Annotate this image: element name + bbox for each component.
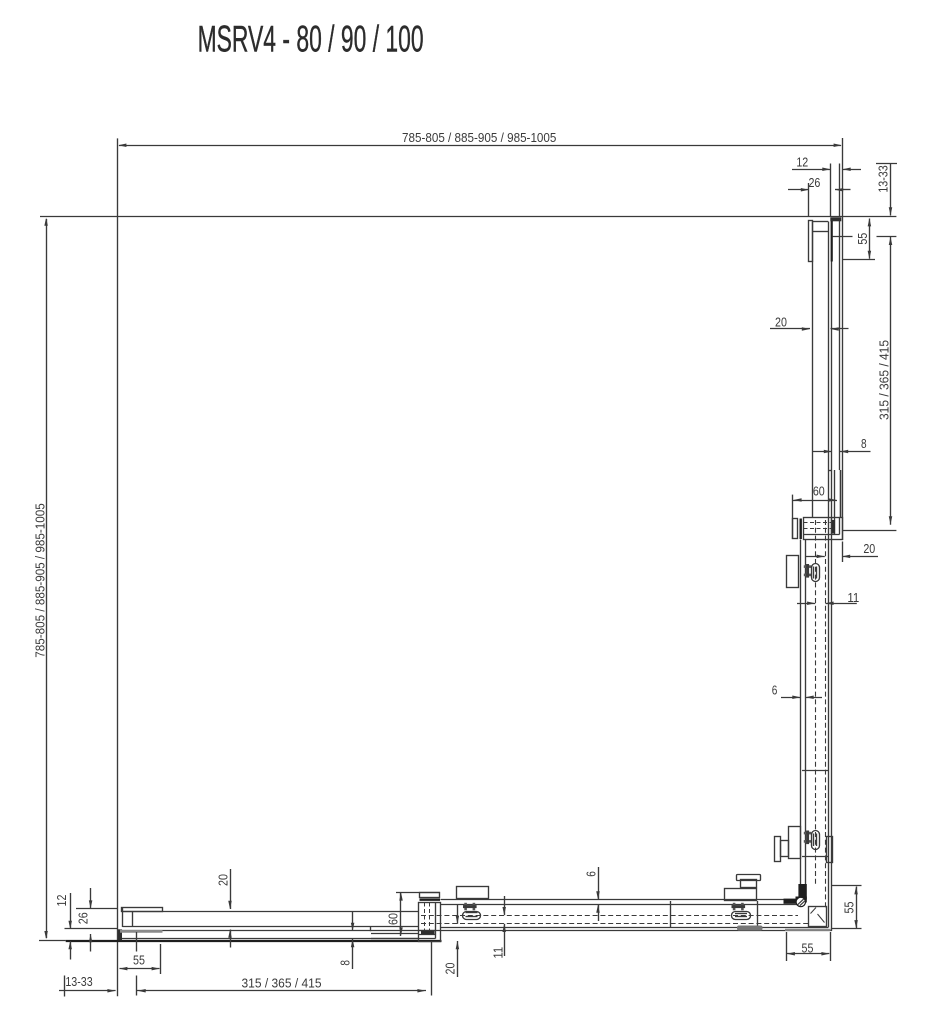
- svg-text:12: 12: [54, 895, 69, 907]
- svg-text:20: 20: [863, 541, 875, 556]
- svg-text:8: 8: [338, 960, 353, 966]
- svg-text:55: 55: [855, 233, 870, 245]
- svg-text:785-805 / 885-905 / 985-1005: 785-805 / 885-905 / 985-1005: [33, 503, 48, 657]
- svg-text:60: 60: [386, 913, 401, 925]
- svg-text:60: 60: [813, 483, 825, 498]
- svg-text:20: 20: [442, 963, 457, 975]
- svg-text:315 / 365 / 415: 315 / 365 / 415: [242, 975, 322, 990]
- svg-text:6: 6: [584, 871, 599, 877]
- svg-text:12: 12: [796, 155, 808, 170]
- svg-text:20: 20: [216, 874, 231, 886]
- svg-text:11: 11: [491, 947, 506, 959]
- svg-text:315 / 365 / 415: 315 / 365 / 415: [877, 340, 892, 420]
- svg-text:8: 8: [861, 436, 867, 451]
- svg-text:26: 26: [808, 175, 820, 190]
- svg-text:55: 55: [133, 953, 145, 968]
- svg-text:MSRV4 - 80 / 90 / 100: MSRV4 - 80 / 90 / 100: [198, 17, 424, 59]
- svg-text:20: 20: [775, 314, 787, 329]
- svg-text:785-805 / 885-905 / 985-1005: 785-805 / 885-905 / 985-1005: [402, 130, 556, 145]
- svg-text:13-33: 13-33: [65, 974, 92, 989]
- svg-text:6: 6: [772, 682, 778, 697]
- svg-text:55: 55: [842, 902, 857, 914]
- svg-text:13-33: 13-33: [876, 165, 891, 192]
- svg-text:26: 26: [76, 912, 91, 924]
